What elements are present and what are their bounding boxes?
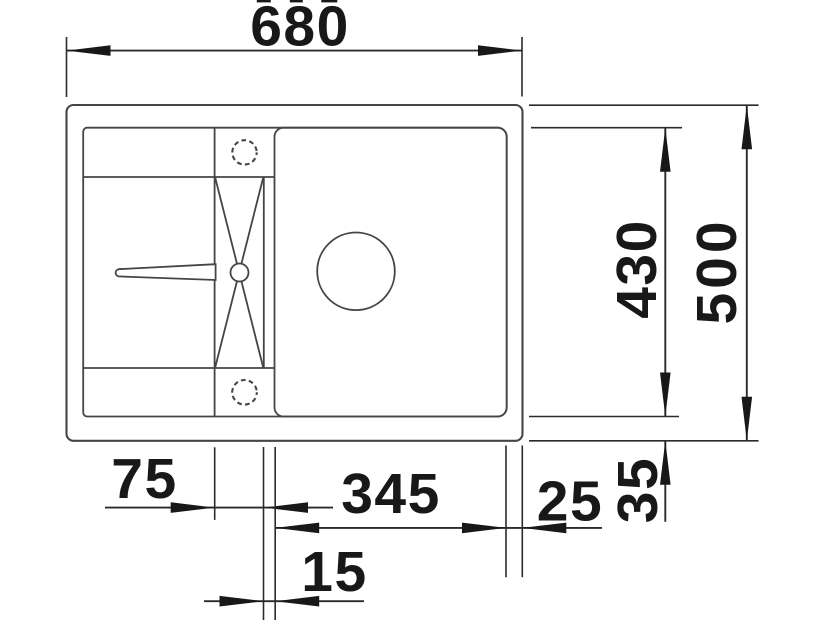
svg-text:25: 25 <box>537 470 603 534</box>
svg-text:15: 15 <box>301 540 367 604</box>
svg-text:500: 500 <box>685 217 749 324</box>
svg-text:345: 345 <box>341 462 441 526</box>
svg-text:75: 75 <box>111 447 177 511</box>
svg-text:430: 430 <box>605 219 669 319</box>
svg-text:35: 35 <box>606 457 670 523</box>
svg-text:680: 680 <box>250 0 350 59</box>
